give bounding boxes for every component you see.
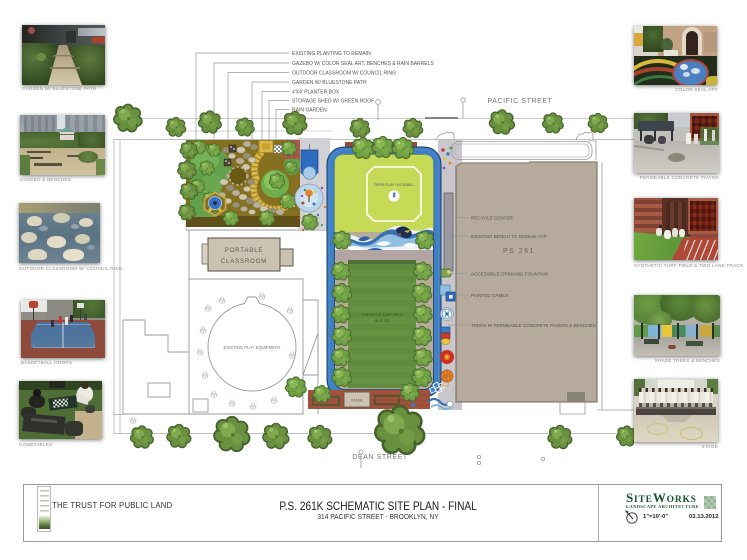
svg-text:STORAGE SHED W/ GREEN ROOF: STORAGE SHED W/ GREEN ROOF <box>292 99 374 105</box>
svg-text:GAZEBO W/ COLOR SEAL ART, BENC: GAZEBO W/ COLOR SEAL ART, BENCHES & RAIN… <box>292 61 434 67</box>
svg-text:W/ 8' SQ: W/ 8' SQ <box>375 319 389 323</box>
svg-text:ACCESSIBLE DRINKING FOUNTAIN: ACCESSIBLE DRINKING FOUNTAIN <box>471 272 548 277</box>
svg-text:DEAN STREET: DEAN STREET <box>352 454 408 461</box>
svg-text:PACIFIC STREET: PACIFIC STREET <box>487 98 552 105</box>
svg-text:PORTABLE: PORTABLE <box>225 248 264 254</box>
svg-text:RECYCLE CENTER: RECYCLE CENTER <box>471 216 514 221</box>
svg-text:TREES IN PERMEABLE CONCRETE PA: TREES IN PERMEABLE CONCRETE PAVERS & BEN… <box>471 323 596 328</box>
svg-text:PAINTED GAMES: PAINTED GAMES <box>471 293 508 298</box>
svg-text:GARDEN W/ BLUESTONE PATH: GARDEN W/ BLUESTONE PATH <box>292 80 367 86</box>
svg-text:EXISTING PLANTING TO REMAIN: EXISTING PLANTING TO REMAIN <box>292 51 371 57</box>
svg-text:STAGE: STAGE <box>351 399 364 403</box>
svg-text:OPEN PLAY / KICKBALL: OPEN PLAY / KICKBALL <box>374 183 414 187</box>
svg-text:4'X4' PLANTER BOX: 4'X4' PLANTER BOX <box>292 90 340 96</box>
svg-text:EXISTING BENCH TO REMAIN TYP: EXISTING BENCH TO REMAIN TYP <box>471 234 547 239</box>
svg-text:SYNTHETIC TURF FIELD: SYNTHETIC TURF FIELD <box>361 313 403 317</box>
svg-text:CLASSROOM: CLASSROOM <box>221 259 267 265</box>
svg-text:PS 261: PS 261 <box>503 248 535 255</box>
svg-text:EXISTING PLAY EQUIPMENT: EXISTING PLAY EQUIPMENT <box>223 345 281 350</box>
svg-text:OUTDOOR CLASSROOM W/ COUNCIL R: OUTDOOR CLASSROOM W/ COUNCIL RING <box>292 71 396 77</box>
